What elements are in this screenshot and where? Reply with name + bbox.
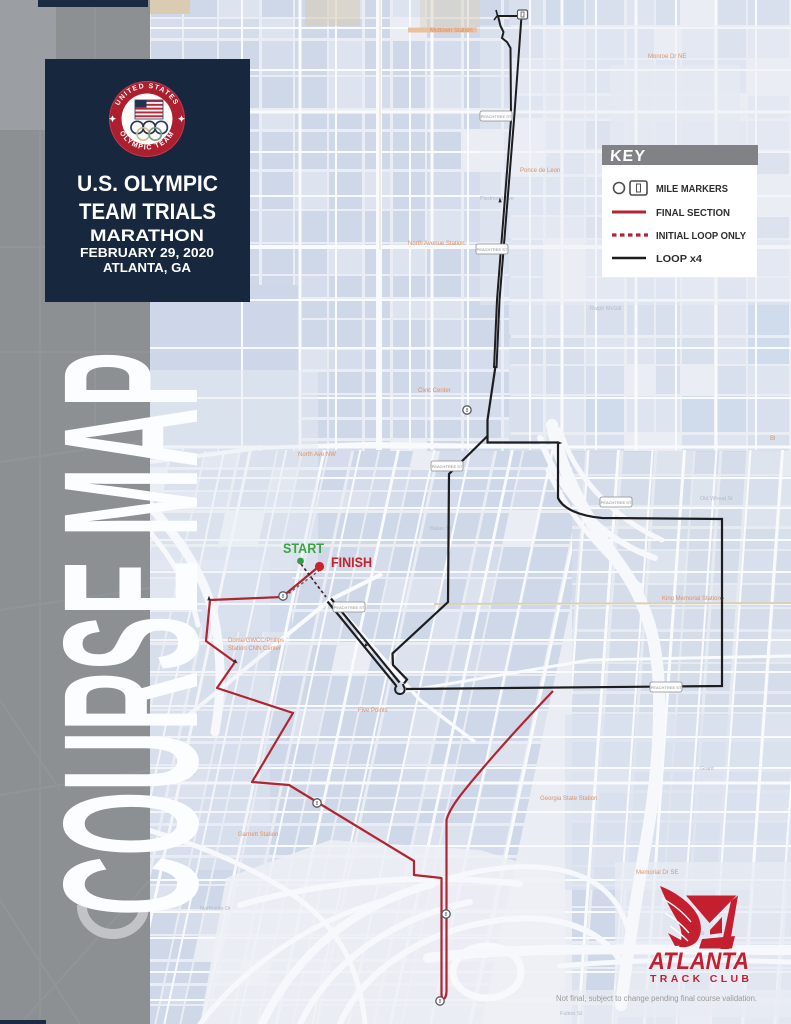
- svg-text:PEACHTREE ST: PEACHTREE ST: [651, 685, 682, 690]
- svg-text:PEACHTREE ST: PEACHTREE ST: [481, 114, 512, 119]
- svg-text:8: 8: [439, 999, 442, 1005]
- svg-text:FINAL SECTION: FINAL SECTION: [656, 208, 730, 219]
- svg-text:ATLANTA, GA: ATLANTA, GA: [103, 261, 191, 275]
- svg-text:PEACHTREE ST: PEACHTREE ST: [432, 464, 463, 469]
- svg-text:FINISH: FINISH: [331, 555, 372, 570]
- svg-text:COURSE MAP: COURSE MAP: [24, 352, 238, 916]
- svg-text:TEAM TRIALS: TEAM TRIALS: [79, 199, 216, 224]
- svg-text:LOOP x4: LOOP x4: [656, 254, 702, 265]
- svg-text:START: START: [283, 541, 325, 556]
- svg-text:8: 8: [466, 408, 469, 414]
- svg-text:Not final, subject to change p: Not final, subject to change pending fin…: [556, 994, 757, 1003]
- svg-text:MILE MARKERS: MILE MARKERS: [656, 184, 728, 195]
- svg-text:FEBRUARY 29, 2020: FEBRUARY 29, 2020: [80, 246, 214, 260]
- svg-text:TRACK CLUB: TRACK CLUB: [650, 973, 749, 985]
- svg-text:MARATHON: MARATHON: [90, 226, 204, 245]
- svg-text:ATLANTA: ATLANTA: [648, 948, 749, 975]
- svg-text:PEACHTREE ST: PEACHTREE ST: [334, 605, 365, 610]
- svg-text:8: 8: [316, 801, 319, 807]
- svg-text:8: 8: [445, 912, 448, 918]
- svg-text:KEY: KEY: [609, 148, 646, 165]
- svg-text:PEACHTREE ST: PEACHTREE ST: [601, 500, 632, 505]
- svg-text:8: 8: [282, 594, 285, 600]
- svg-text:PEACHTREE ST: PEACHTREE ST: [477, 247, 508, 252]
- svg-text:U.S. OLYMPIC: U.S. OLYMPIC: [77, 171, 218, 196]
- svg-text:INITIAL LOOP ONLY: INITIAL LOOP ONLY: [656, 231, 746, 242]
